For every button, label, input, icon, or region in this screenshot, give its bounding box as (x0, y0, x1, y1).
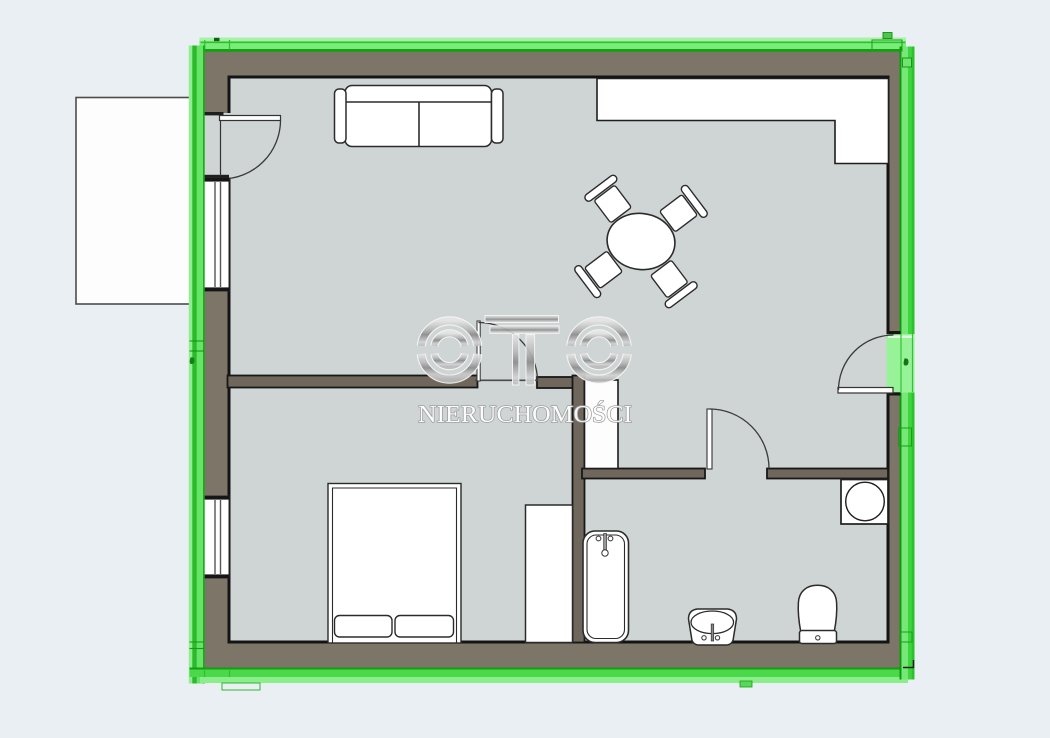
svg-text:NIERUCHOMOŚCI: NIERUCHOMOŚCI (418, 401, 632, 428)
